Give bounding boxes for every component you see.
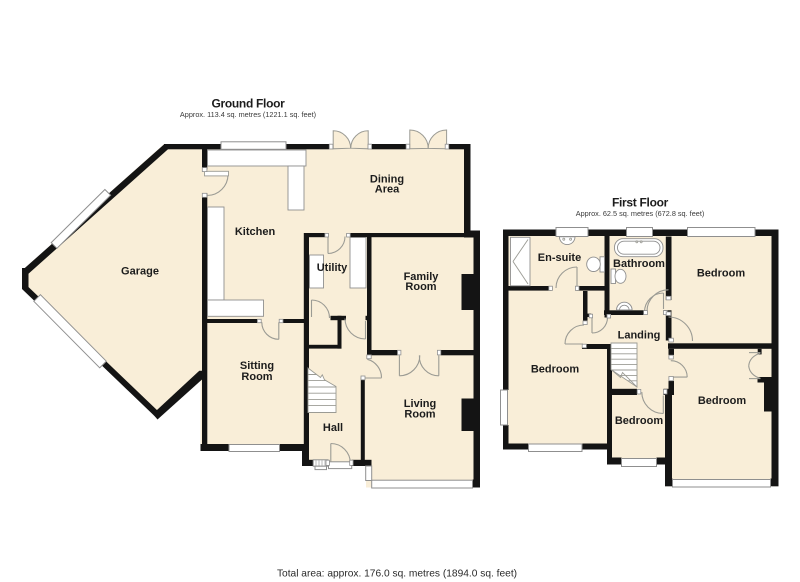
svg-text:Bedroom: Bedroom: [615, 415, 664, 427]
svg-text:En-suite: En-suite: [538, 252, 581, 264]
svg-text:Approx. 62.5 sq. metres (672.8: Approx. 62.5 sq. metres (672.8 sq. feet): [576, 209, 705, 218]
svg-text:Room: Room: [404, 409, 435, 421]
svg-text:Ground Floor: Ground Floor: [211, 97, 285, 111]
svg-text:First Floor: First Floor: [612, 196, 669, 210]
svg-text:Bedroom: Bedroom: [697, 268, 746, 280]
svg-text:Bedroom: Bedroom: [698, 395, 747, 407]
svg-text:Room: Room: [405, 281, 436, 293]
svg-text:Utility: Utility: [317, 262, 348, 274]
svg-text:Landing: Landing: [618, 330, 661, 342]
svg-text:Garage: Garage: [121, 266, 159, 278]
svg-text:Hall: Hall: [323, 422, 343, 434]
svg-text:Area: Area: [375, 184, 400, 196]
svg-text:Approx. 113.4 sq. metres (1221: Approx. 113.4 sq. metres (1221.1 sq. fee…: [180, 110, 316, 119]
svg-text:Kitchen: Kitchen: [235, 226, 276, 238]
svg-text:Bathroom: Bathroom: [613, 258, 665, 270]
svg-text:Bedroom: Bedroom: [531, 363, 580, 375]
svg-text:Total area: approx. 176.0 sq.: Total area: approx. 176.0 sq. metres (18…: [277, 569, 517, 580]
svg-text:Room: Room: [241, 371, 272, 383]
